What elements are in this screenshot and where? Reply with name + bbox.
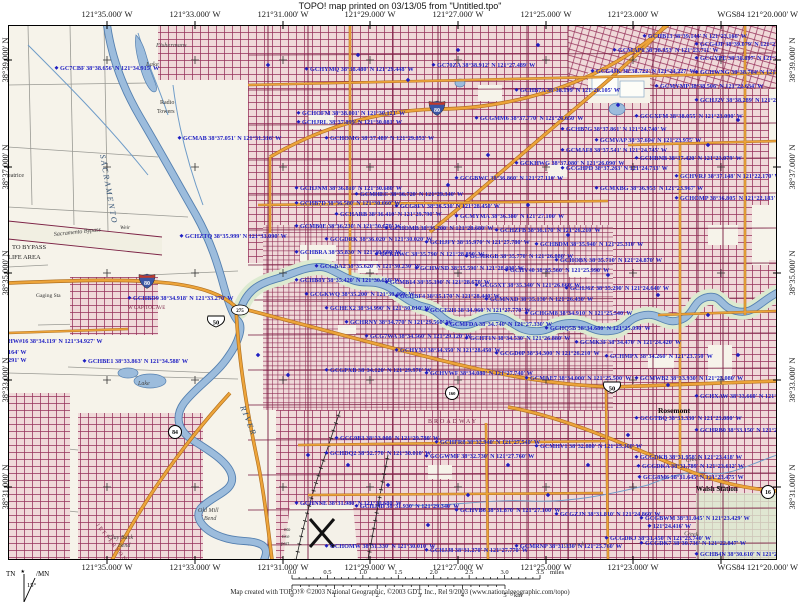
waypoint[interactable]: GCMK3F 38°34.470' N 121°24.420' W bbox=[575, 339, 682, 346]
map-canvas[interactable]: 808050502758416016FishermansLakeRadioTow… bbox=[8, 25, 777, 560]
waypoint[interactable]: GCGBWC 38°36.860' N 121°27.110' W bbox=[455, 175, 564, 182]
waypoint-label: GCHBD9 38°34.918' N 121°33.270' W bbox=[133, 295, 234, 302]
place-label: tive bbox=[282, 535, 290, 540]
waypoint-label: HW#16 38°34.119' N 121°34.927' W bbox=[8, 338, 103, 345]
waypoint-label: 291' W bbox=[8, 357, 27, 364]
waypoint-label: GCMAB 38°37.051' N 121°31.316' W bbox=[183, 135, 282, 142]
waypoint-label: GCGMM6 38°37.770' N 121°26.650' W bbox=[480, 115, 584, 122]
scale-bar: 0.00.51.01.52.02.53.03.5miles012345km bbox=[283, 568, 593, 602]
waypoint-label: GCHOBX 38°35.710' N 121°24.870' W bbox=[560, 257, 663, 264]
waypoint-label: GCHOMG 38°37.489' N 121°29.853' W bbox=[330, 135, 435, 142]
waypoint-label: GCHYMQ 38°38.480' N 121°29.448' W bbox=[310, 66, 415, 73]
waypoint[interactable]: GCGBA2 38°35.620' N 121°30.230' W bbox=[315, 263, 422, 270]
place-label: Towers bbox=[157, 109, 175, 115]
waypoint-label: GCHWNG 38°38.704' N 121°21.693' W bbox=[700, 69, 800, 76]
route-shield-84: 84 bbox=[169, 426, 182, 439]
waypoint-label: GCHB7G 38°37.861' N 121°24.740' W bbox=[566, 126, 668, 133]
waypoint-label: GCHJ2V 38°38.289' N 121°21.680' W bbox=[700, 97, 800, 104]
waypoint-label: GCHEX2 38°34.990' N 121°30.010' W bbox=[330, 305, 431, 312]
latitude-label: 38°33.000' N bbox=[787, 333, 799, 427]
route-shield-label: 84 bbox=[172, 430, 178, 436]
waypoint[interactable]: HW#16 38°34.119' N 121°34.927' W bbox=[3, 338, 104, 345]
scale-miles-unit: miles bbox=[550, 569, 565, 576]
waypoint[interactable]: GCHEX2 38°34.990' N 121°30.010' W bbox=[325, 305, 432, 312]
waypoint[interactable]: GCHB4N 38°30.610' N 121°21.740' W bbox=[695, 551, 800, 558]
waypoint[interactable]: GCGWMF 38°32.730' N 121°27.760' W bbox=[425, 453, 536, 460]
waypoint-label: GCHOMB 38°36.200' N 121°28.680' W bbox=[390, 225, 494, 232]
waypoint[interactable]: GCHBF4 38°35.170' N 121°28.440' W bbox=[395, 293, 501, 300]
waypoint[interactable]: GCKHWG 38°37.080' N 121°26.090' W bbox=[515, 160, 626, 167]
waypoint[interactable]: GCHDQ2 38°32.770' N 121°30.010' W bbox=[325, 450, 432, 457]
waypoint[interactable]: GCMAF8 38°37.541' N 121°24.745' W bbox=[561, 147, 668, 154]
waypoint-label: GCGBWC 38°36.860' N 121°27.110' W bbox=[460, 175, 564, 182]
waypoint[interactable]: GCHBDM 38°35.940' N 121°25.310' W bbox=[535, 241, 644, 248]
waypoint[interactable]: GCMWB2 38°33.930' N 121°23.080' W bbox=[635, 375, 744, 382]
waypoint-label: GCMRNP 38°31.330' N 121°25.760' W bbox=[520, 543, 623, 550]
waypoint-label: 164' W bbox=[8, 349, 27, 356]
scale-miles-tick: 1.5 bbox=[394, 569, 402, 576]
waypoint[interactable]: GCHV40 38°35.560' N 121°25.990' W bbox=[505, 267, 611, 274]
waypoint[interactable]: GCGD0P 38°34.300' N 121°26.210' W bbox=[495, 350, 601, 357]
waypoint-label: GCGE2H 38°34.960' N 121°27.770' W bbox=[430, 307, 532, 314]
waypoint[interactable]: GCMFDA 38°34.740' N 121°27.330' W bbox=[445, 321, 553, 328]
waypoint[interactable]: GCMAB 38°37.051' N 121°31.316' W bbox=[178, 135, 283, 142]
waypoint[interactable]: GCHB13 38°39.144' N 121°23.166' W bbox=[643, 33, 748, 40]
waypoint-label: GCHRB0 38°33.150' N 121°21.740' W bbox=[700, 427, 800, 434]
waypoint[interactable]: GCHRB0 38°33.150' N 121°21.740' W bbox=[695, 427, 800, 434]
waypoint-label: GCHRNY 38°34.770' N 121°29.560' W bbox=[350, 319, 453, 326]
waypoint-label: GCHOMW 38°31.330' N 121°30.010' W bbox=[330, 543, 436, 550]
waypoint[interactable]: GCHJRL 38°37.899' N 121°30.081' W bbox=[297, 119, 403, 126]
waypoint-label: GCHDQ2 38°32.770' N 121°30.010' W bbox=[330, 450, 432, 457]
waypoint-label: GCHBE1 38°33.863' N 121°34.588' W bbox=[88, 358, 189, 365]
copyright-credit: Map created with TOPO!® ©2003 National G… bbox=[0, 589, 800, 596]
route-shield-label: 275 bbox=[236, 309, 244, 314]
waypoint[interactable]: GCG8M6 38°31.645' N 121°23.475' W bbox=[638, 474, 745, 481]
true-north-star-icon: ★ bbox=[21, 569, 26, 575]
waypoint[interactable]: GCMHV1 38°32.880' N 121°25.300' W bbox=[535, 443, 643, 450]
waypoint-label: GCMVAP 38°37.694' N 121°23.975' W bbox=[600, 137, 702, 144]
waypoint-label: GCHBDM 38°35.940' N 121°25.310' W bbox=[540, 241, 644, 248]
waypoint[interactable]: GCHZFB 38°36.170' N 121°26.210' W bbox=[495, 227, 602, 234]
route-shield-275: 275 bbox=[232, 305, 249, 315]
waypoint[interactable]: GCHJ4D 38°31.930' N 121°29.340' W bbox=[355, 503, 461, 510]
waypoint[interactable]: GCHWNG 38°38.704' N 121°21.693' W bbox=[695, 69, 800, 76]
latitude-label: 38°37.000' N bbox=[787, 120, 799, 214]
waypoint-label: GCHRNB 38°37.420' N 121°23.079' W bbox=[640, 155, 743, 162]
waypoint[interactable]: GCHRNY 38°34.770' N 121°29.560' W bbox=[345, 319, 453, 326]
waypoint[interactable]: GCHB7D 38°36.580' N 121°30.660' W bbox=[295, 200, 402, 207]
waypoint-label: GCHMPX 38°34.260' N 121°23.750' W bbox=[610, 353, 714, 360]
place-label: LIFE AREA bbox=[8, 254, 41, 261]
waypoint[interactable]: GC7CBF 38°38.656' N 121°34.915' W bbox=[55, 65, 160, 72]
waypoint[interactable]: GCHGM8 38°34.910' N 121°25.540' W bbox=[525, 310, 634, 317]
waypoint-label: GCGXFM 38°38.055' N 121°23.090' W bbox=[640, 113, 744, 120]
scale-miles-tick: 3.0 bbox=[501, 569, 509, 576]
waypoint[interactable]: GCG4JK 38°38.722' N 121°24.227' W bbox=[591, 68, 697, 75]
waypoint-label: GCHFR8 38°32.940' N 121°27.540' W bbox=[440, 439, 541, 446]
waypoint-label: GCHB4N 38°30.610' N 121°21.740' W bbox=[700, 551, 800, 558]
waypoint[interactable]: GCHWND 38°35.590' N 121°28.000' W bbox=[415, 265, 525, 272]
latitude-label: 38°31.000' N bbox=[787, 440, 799, 534]
longitude-label: WGS84 121°20.000' W bbox=[668, 562, 798, 572]
waypoint-label: GCGWMF 38°32.730' N 121°27.760' W bbox=[430, 453, 535, 460]
waypoint-label: GCHB7A 38°38.199' N 121°26.105' W bbox=[520, 87, 621, 94]
waypoint[interactable]: GCHYMQ 38°38.480' N 121°29.448' W bbox=[305, 66, 415, 73]
waypoint-label: 121°24.416' W bbox=[653, 523, 692, 530]
waypoint-label: GCMRGB 38°35.770' N 121°26.880' W bbox=[470, 253, 574, 260]
waypoint-label: GCG8FV 38°36.530' N 121°28.450' W bbox=[400, 203, 501, 210]
waypoint[interactable]: GCHJ6Z 38°35.290' N 121°24.640' W bbox=[565, 285, 670, 292]
waypoint-label: GCHQ5B 38°34.680' N 121°25.090' W bbox=[550, 325, 652, 332]
waypoint-label: GCMXBG 38°36.953' N 121°23.967' W bbox=[600, 185, 704, 192]
waypoint-label: GCMYMP 38°38.506' N 121°22.634' W bbox=[660, 83, 764, 90]
waypoint[interactable]: GCG7WA 38°34.560' N 121°29.120' W bbox=[365, 333, 473, 340]
topo-print-page: TOPO! map printed on 03/13/05 from "Unti… bbox=[0, 0, 800, 602]
place-label: nto bbox=[284, 528, 291, 533]
waypoint-label: GCHZFB 38°36.170' N 121°26.210' W bbox=[500, 227, 602, 234]
waypoint-label: GC7CBF 38°38.656' N 121°34.915' W bbox=[60, 65, 160, 72]
place-label: TO BYPASS bbox=[12, 244, 47, 251]
waypoint[interactable]: GCGE2H 38°34.960' N 121°27.770' W bbox=[425, 307, 532, 314]
place-label: Old Mill bbox=[198, 508, 219, 514]
place-label: Weir bbox=[120, 225, 131, 231]
waypoint[interactable]: GCMVAP 38°37.694' N 121°23.975' W bbox=[595, 137, 703, 144]
waypoint-label: GCGBWM 38°31.045' N 121°23.429' W bbox=[645, 515, 751, 522]
waypoint[interactable]: GCHJJ8 38°31.270' N 121°27.770' W bbox=[425, 547, 529, 554]
route-shield-label: 16 bbox=[765, 490, 771, 496]
waypoint[interactable]: GCHB8Y 38°35.420' N 121°30.690' W bbox=[295, 277, 401, 284]
waypoint-label: GCHB7D 38°36.580' N 121°30.660' W bbox=[300, 200, 401, 207]
waypoint[interactable]: GCGYPE 38°38.897' N 121°21.702' W bbox=[695, 55, 800, 62]
waypoint[interactable]: GCGDK7 38°30.736' N 121°22.847' W bbox=[640, 540, 747, 547]
waypoint[interactable]: GCHVWF 38°34.080' N 121°27.740' W bbox=[425, 370, 534, 377]
place-label: W CAPITOL AVE bbox=[128, 306, 165, 311]
scale-miles-tick: 3.5 bbox=[536, 569, 544, 576]
place-label: Clay Bank bbox=[108, 535, 133, 541]
waypoint-label: GCG8M6 38°31.645' N 121°23.475' W bbox=[643, 474, 745, 481]
waypoint-label: GCHJJ8 38°31.270' N 121°27.770' W bbox=[430, 547, 529, 554]
declination-indicator: ★TN/MN15° bbox=[4, 566, 74, 602]
waypoint-label: GCHT1N 38°34.530' N 121°26.880' W bbox=[470, 335, 571, 342]
route-shield-label: 50 bbox=[213, 320, 220, 327]
place-label: Bend bbox=[118, 543, 131, 549]
scale-miles-tick: 0.5 bbox=[323, 569, 331, 576]
waypoint[interactable]: GCMAP6 38°38.953' N 121°23.711' W bbox=[613, 47, 720, 54]
place-label: eatrice bbox=[8, 173, 24, 179]
waypoint-label: GCMHEC 38°36.720' N 121°29.340' W bbox=[360, 191, 464, 198]
place-label: Fishermans bbox=[155, 42, 187, 49]
place-label: port bbox=[281, 542, 290, 547]
waypoint[interactable]: GCHOMP 38°36.805' N 121°22.183' W bbox=[675, 195, 784, 202]
declination-angle: 15° bbox=[27, 582, 37, 589]
waypoint-label: GCHXAW 38°33.660' N 121°21.740' W bbox=[700, 393, 800, 400]
true-north-label: TN bbox=[6, 570, 15, 578]
route-shield-label: 50 bbox=[609, 386, 616, 393]
waypoint-label: GCHARB 38°36.410' N 121°29.790' W bbox=[340, 211, 443, 218]
waypoint-label: GCG9B3 38°33.000' N 121°29.780' W bbox=[340, 435, 440, 442]
waypoint-label: GCHWND 38°35.590' N 121°28.000' W bbox=[420, 265, 525, 272]
waypoint[interactable]: GCGDKB 38°31.958' N 121°23.418' W bbox=[635, 454, 743, 461]
waypoint-label: GCHJ6Z 38°35.290' N 121°24.640' W bbox=[570, 285, 670, 292]
waypoint-label: GCHGM8 38°34.910' N 121°25.540' W bbox=[530, 310, 633, 317]
waypoint-label: GCGPXB 38°34.120' N 121°29.970' W bbox=[330, 367, 432, 374]
waypoint[interactable]: GCGDRK 38°36.020' N 121°30.020' W bbox=[325, 236, 434, 243]
waypoint-label: GCGBA2 38°35.620' N 121°30.230' W bbox=[320, 263, 421, 270]
latitude-label: 38°35.000' N bbox=[787, 226, 799, 320]
waypoint[interactable]: GCGBWM 38°31.045' N 121°23.429' W bbox=[640, 515, 751, 522]
place-label: Walsh Station bbox=[696, 485, 738, 493]
waypoint-label: GCHVB6 38°31.870' N 121°27.100' W bbox=[460, 507, 561, 514]
place-label: Radio bbox=[160, 100, 174, 106]
place-label: Bend bbox=[204, 516, 217, 522]
waypoint-label: GCMWB2 38°33.930' N 121°23.080' W bbox=[640, 375, 744, 382]
waypoint-label: GCMNXD 38°35.130' N 121°26.430' W bbox=[490, 296, 594, 303]
waypoint-label: GCMHV1 38°32.880' N 121°25.300' W bbox=[540, 443, 643, 450]
scale-miles-tick: 2.0 bbox=[430, 569, 438, 576]
waypoint[interactable]: GCHOMB 38°36.200' N 121°28.680' W bbox=[385, 225, 495, 232]
waypoint[interactable]: GCHJ2V 38°38.289' N 121°21.680' W bbox=[695, 97, 800, 104]
scale-miles-tick: 2.5 bbox=[465, 569, 473, 576]
waypoint[interactable]: GCGMM6 38°37.770' N 121°26.650' W bbox=[475, 115, 585, 122]
waypoint-label: GCHVWF 38°34.080' N 121°27.740' W bbox=[430, 370, 534, 377]
scale-miles-tick: 1.0 bbox=[359, 569, 367, 576]
waypoint[interactable]: GCMYMP 38°38.506' N 121°22.634' W bbox=[655, 83, 765, 90]
waypoint[interactable]: GCHXAW 38°33.660' N 121°21.740' W bbox=[695, 393, 800, 400]
waypoint[interactable]: GCKHWC 38°35.790' N 121°28.890' W bbox=[375, 251, 485, 258]
waypoint[interactable]: GCHOMW 38°31.330' N 121°30.010' W bbox=[325, 543, 437, 550]
waypoint[interactable]: GCHBD9 38°34.918' N 121°33.270' W bbox=[128, 295, 235, 302]
waypoint[interactable]: GCGXFM 38°38.055' N 121°23.090' W bbox=[635, 113, 744, 120]
waypoint-label: GCHJFY 38°35.970' N 121°27.780' W bbox=[430, 239, 531, 246]
waypoint[interactable]: GCHZTQ 38°35.999' N 121°33.090' W bbox=[180, 233, 288, 240]
waypoint[interactable]: GCGDKA 38°31.789' N 121°23.612' W bbox=[637, 463, 745, 470]
waypoint-label: GCHZTQ 38°35.999' N 121°33.090' W bbox=[185, 233, 288, 240]
waypoint[interactable]: GCGKWQ 38°35.200' N 121°30.460' W bbox=[305, 291, 416, 298]
waypoint[interactable]: GCHJFY 38°35.970' N 121°27.780' W bbox=[425, 239, 531, 246]
route-shield-label: 160 bbox=[449, 391, 457, 396]
waypoint[interactable]: GCHARB 38°36.410' N 121°29.790' W bbox=[335, 211, 443, 218]
waypoint-label: GCGDRK 38°36.020' N 121°30.020' W bbox=[330, 236, 433, 243]
waypoint-label: GCMAE7 38°34.000' N 121°25.500' W bbox=[530, 375, 632, 382]
waypoint[interactable]: GCHT1N 38°34.530' N 121°26.880' W bbox=[465, 335, 572, 342]
scale-miles-tick: 0.0 bbox=[288, 569, 296, 576]
route-shield-160: 160 bbox=[446, 387, 459, 400]
waypoint[interactable]: GCHOMG 38°37.489' N 121°29.853' W bbox=[325, 135, 435, 142]
waypoint-label: GCMAP6 38°38.953' N 121°23.711' W bbox=[618, 47, 720, 54]
waypoint-label: GCHVRJ 38°37.148' N 121°22.170' W bbox=[680, 173, 782, 180]
waypoint[interactable]: 121°24.416' W bbox=[648, 523, 692, 530]
waypoint-label: GCHYNJ 38°34.350' N 121°28.450' W bbox=[400, 347, 502, 354]
waypoint-label: GCGDKB 38°31.958' N 121°23.418' W bbox=[640, 454, 743, 461]
waypoint-label: GCHJ4D 38°31.930' N 121°29.340' W bbox=[360, 503, 460, 510]
waypoint-label: GCGDK7 38°30.736' N 121°22.847' W bbox=[645, 540, 747, 547]
waypoint-label: GC70ZA 38°38.912' N 121°27.489' W bbox=[437, 62, 536, 69]
waypoint[interactable]: GCMHEC 38°36.720' N 121°29.340' W bbox=[355, 191, 464, 198]
waypoint[interactable]: GCHB7A 38°38.199' N 121°26.105' W bbox=[515, 87, 621, 94]
waypoint[interactable]: GCHBE1 38°33.863' N 121°34.588' W bbox=[83, 358, 189, 365]
waypoint-label: GCG7WA 38°34.560' N 121°29.120' W bbox=[370, 333, 472, 340]
waypoint[interactable]: GCG8FV 38°36.530' N 121°28.450' W bbox=[395, 203, 501, 210]
waypoint[interactable]: GCMNXD 38°35.130' N 121°26.430' W bbox=[485, 296, 594, 303]
waypoint[interactable]: GCHRNB 38°37.420' N 121°23.079' W bbox=[635, 155, 743, 162]
waypoint-label: GCGYPE 38°38.897' N 121°21.702' W bbox=[700, 55, 800, 62]
place-label: Rosemont bbox=[658, 406, 691, 415]
longitude-label: WGS84 121°20.000' W bbox=[668, 9, 798, 19]
waypoint[interactable]: GC70ZA 38°38.912' N 121°27.489' W bbox=[432, 62, 537, 69]
waypoint[interactable]: GCHOBX 38°35.710' N 121°24.870' W bbox=[555, 257, 663, 264]
waypoint-label: GCMK3F 38°34.470' N 121°24.420' W bbox=[580, 339, 682, 346]
waypoint-label: GCHB13 38°39.144' N 121°23.166' W bbox=[648, 33, 748, 40]
waypoint[interactable]: GCGTBQ 38°33.330' N 121°23.080' W bbox=[635, 415, 743, 422]
map-layers: 808050502758416016FishermansLakeRadioTow… bbox=[3, 25, 800, 564]
waypoint[interactable]: GCHMPX 38°34.260' N 121°23.750' W bbox=[605, 353, 714, 360]
waypoint[interactable]: GCGPXB 38°34.120' N 121°29.970' W bbox=[325, 367, 432, 374]
waypoint[interactable]: GCHVB6 38°31.870' N 121°27.100' W bbox=[455, 507, 562, 514]
waypoint-label: GCHOMP 38°36.805' N 121°22.183' W bbox=[680, 195, 784, 202]
route-shield-label: 80 bbox=[434, 108, 440, 114]
place-label: BROADWAY bbox=[428, 419, 478, 425]
waypoint[interactable]: GCHYNJ 38°34.350' N 121°28.450' W bbox=[395, 347, 502, 354]
latitude-label: 38°39.000' N bbox=[787, 13, 799, 107]
waypoint[interactable]: GCMYMA 38°36.380' N 121°27.100' W bbox=[455, 213, 565, 220]
waypoint-label: GCHOFM 38°38.001' N 121°30.121' W bbox=[302, 110, 406, 117]
waypoint-label: GCGD0P 38°34.300' N 121°26.210' W bbox=[500, 350, 601, 357]
place-label: Lake bbox=[137, 381, 150, 387]
waypoint[interactable]: GCHOFM 38°38.001' N 121°30.121' W bbox=[297, 110, 406, 117]
waypoint-label: GCMFDA 38°34.740' N 121°27.330' W bbox=[450, 321, 553, 328]
waypoint-label: GCGDKA 38°31.789' N 121°23.612' W bbox=[642, 463, 745, 470]
route-shield-16: 16 bbox=[762, 486, 775, 499]
waypoint[interactable]: GCMRNP 38°31.330' N 121°25.760' W bbox=[515, 543, 623, 550]
waypoint[interactable]: GCMXBG 38°36.953' N 121°23.967' W bbox=[595, 185, 704, 192]
waypoint[interactable]: GCG9B3 38°33.000' N 121°29.780' W bbox=[335, 435, 440, 442]
waypoint[interactable]: GCMAE7 38°34.000' N 121°25.500' W bbox=[525, 375, 633, 382]
waypoint-label: GCHJRL 38°37.899' N 121°30.081' W bbox=[302, 119, 403, 126]
waypoint[interactable]: GCHQ5B 38°34.680' N 121°25.090' W bbox=[545, 325, 652, 332]
place-label: Gaging Sta bbox=[36, 293, 61, 299]
waypoint-label: GCGTBQ 38°33.330' N 121°23.080' W bbox=[640, 415, 743, 422]
waypoint-label: GCG4JK 38°38.722' N 121°24.227' W bbox=[596, 68, 697, 75]
waypoint[interactable]: GCHB7G 38°37.861' N 121°24.740' W bbox=[561, 126, 668, 133]
waypoint[interactable]: GCHVRJ 38°37.148' N 121°22.170' W bbox=[675, 173, 782, 180]
waypoint-label: GCKHWG 38°37.080' N 121°26.090' W bbox=[520, 160, 625, 167]
waypoint-label: GCHV40 38°35.560' N 121°25.990' W bbox=[510, 267, 610, 274]
magnetic-north-label: /MN bbox=[36, 570, 49, 578]
waypoint-label: GCMAF8 38°37.541' N 121°24.745' W bbox=[566, 147, 668, 154]
waypoint-label: GCMYMA 38°36.380' N 121°27.100' W bbox=[460, 213, 565, 220]
waypoint[interactable]: GCHFR8 38°32.940' N 121°27.540' W bbox=[435, 439, 541, 446]
route-shield-label: 80 bbox=[144, 281, 150, 287]
